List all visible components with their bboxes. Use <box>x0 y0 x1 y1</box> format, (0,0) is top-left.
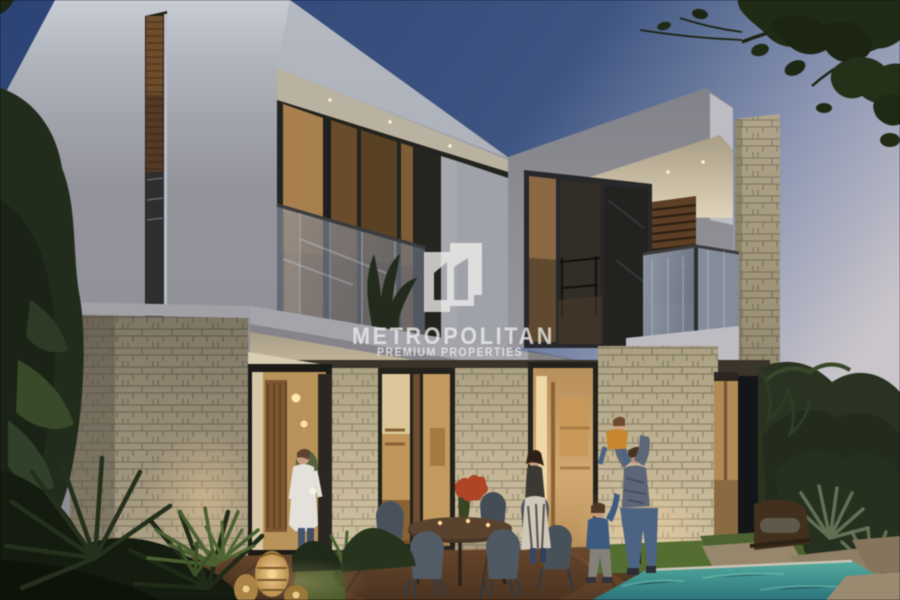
svg-text:PREMIUM PROPERTIES: PREMIUM PROPERTIES <box>377 347 523 359</box>
svg-text:METROPOLITAN: METROPOLITAN <box>352 323 555 350</box>
